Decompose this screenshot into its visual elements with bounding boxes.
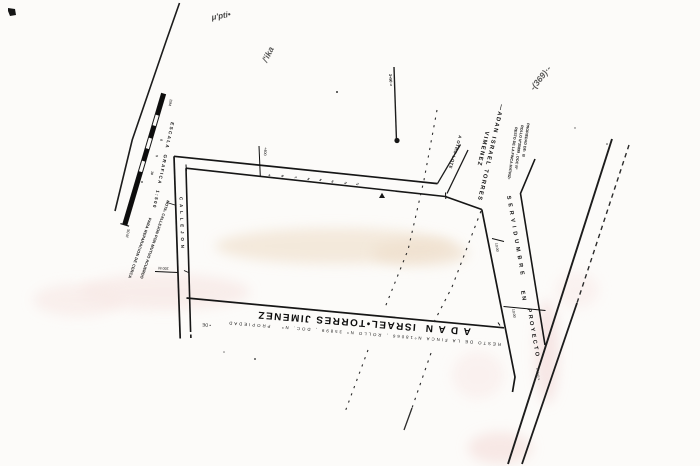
- svg-text:100 M: 100 M: [158, 266, 169, 271]
- svg-text:+400: +400: [263, 147, 268, 156]
- svg-text:• DE: • DE: [202, 322, 211, 328]
